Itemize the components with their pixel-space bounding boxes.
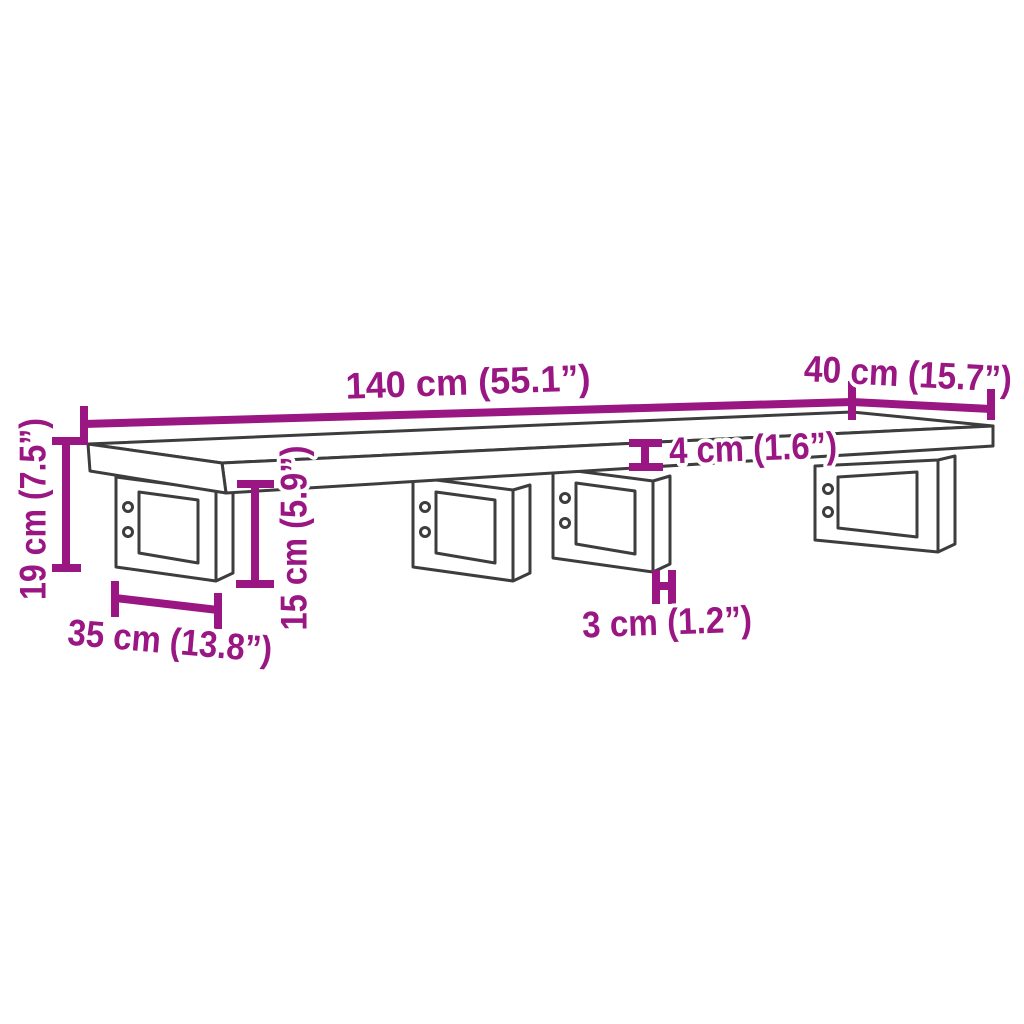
dimension-bracket-depth: 35 cm (13.8”) [66,581,274,670]
shelf-dimension-drawing: 140 cm (55.1”) 40 cm (15.7”) 19 cm (7.5”… [0,0,1024,1024]
bracket-depth-label: 35 cm (13.8”) [66,612,274,671]
dimension-diagram: 140 cm (55.1”) 40 cm (15.7”) 19 cm (7.5”… [0,0,1024,1024]
dimension-overall-height: 19 cm (7.5”) [13,418,82,600]
bracket-bar-thickness-label: 3 cm (1.2”) [581,599,752,646]
screw-hole [824,485,833,494]
wall-bracket-3 [553,468,670,572]
bracket-height-label: 15 cm (5.9”) [274,446,315,631]
wall-bracket-2 [413,477,530,581]
dimension-line [115,598,218,610]
overall-height-label: 19 cm (7.5”) [13,418,54,600]
shelf-thickness-label: 4 cm (1.6”) [668,425,837,472]
dimension-bracket-bar-thickness: 3 cm (1.2”) [581,570,752,645]
dimension-shelf-depth: 40 cm (15.7”) [803,348,1013,420]
dimension-line [852,402,991,409]
wall-bracket-4 [815,456,955,552]
shelf-length-label: 140 cm (55.1”) [345,357,591,407]
shelf-depth-label: 40 cm (15.7”) [803,348,1013,400]
screw-hole [824,508,833,517]
